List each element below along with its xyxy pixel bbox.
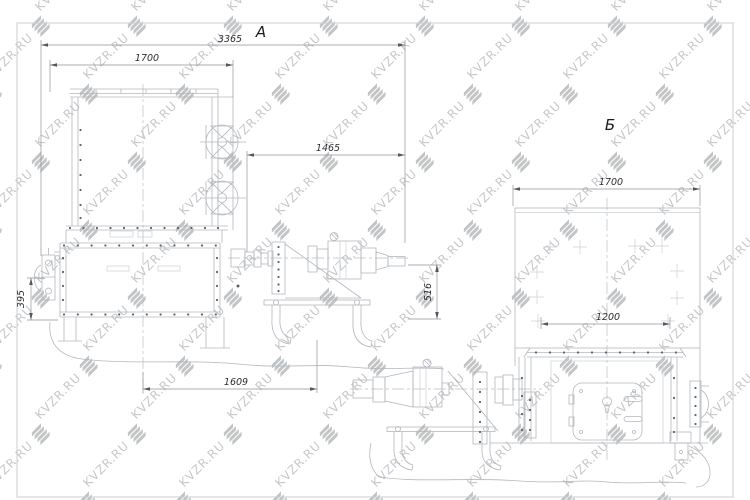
view-b: Б — [350, 116, 710, 487]
right-bracket — [670, 432, 691, 460]
dim-base-length-a: 1609 — [224, 377, 248, 388]
view-a-machine — [34, 84, 444, 394]
drawing-svg: А — [0, 0, 750, 500]
pulley-top — [200, 125, 246, 159]
bolt-dots-a — [63, 130, 279, 315]
dim-flange-width-b: 1200 — [596, 312, 620, 323]
view-b-label: Б — [605, 116, 615, 134]
pulley-bottom — [200, 181, 246, 215]
side-flange — [690, 381, 709, 427]
motor — [308, 233, 405, 280]
foundation-break-right — [689, 446, 710, 487]
dim-drive-height-a: 516 — [423, 283, 434, 301]
dim-body-width-b: 1700 — [599, 177, 623, 188]
dim-left-height-a: 395 — [16, 290, 27, 308]
dim-overall-width-a: 3365 — [218, 34, 242, 45]
technical-drawing-canvas: KVZR.RUKVZR.RUKVZR.RUKVZR.RUKVZR.RUKVZR.… — [0, 0, 750, 500]
view-b-drive — [350, 359, 686, 483]
drawing-frame — [17, 23, 733, 497]
dim-drive-length-a: 1465 — [316, 143, 340, 154]
view-b-machine — [490, 198, 710, 487]
view-a-drive — [228, 233, 408, 348]
foundation-break-line-a — [50, 322, 444, 369]
dim-body-width-a: 1700 — [135, 53, 159, 64]
view-a: А — [16, 23, 444, 394]
view-b-dimensions: 1700 1200 — [513, 177, 700, 329]
left-lug — [34, 248, 60, 300]
view-a-label: А — [255, 23, 266, 41]
foundation-break-b — [370, 443, 686, 483]
